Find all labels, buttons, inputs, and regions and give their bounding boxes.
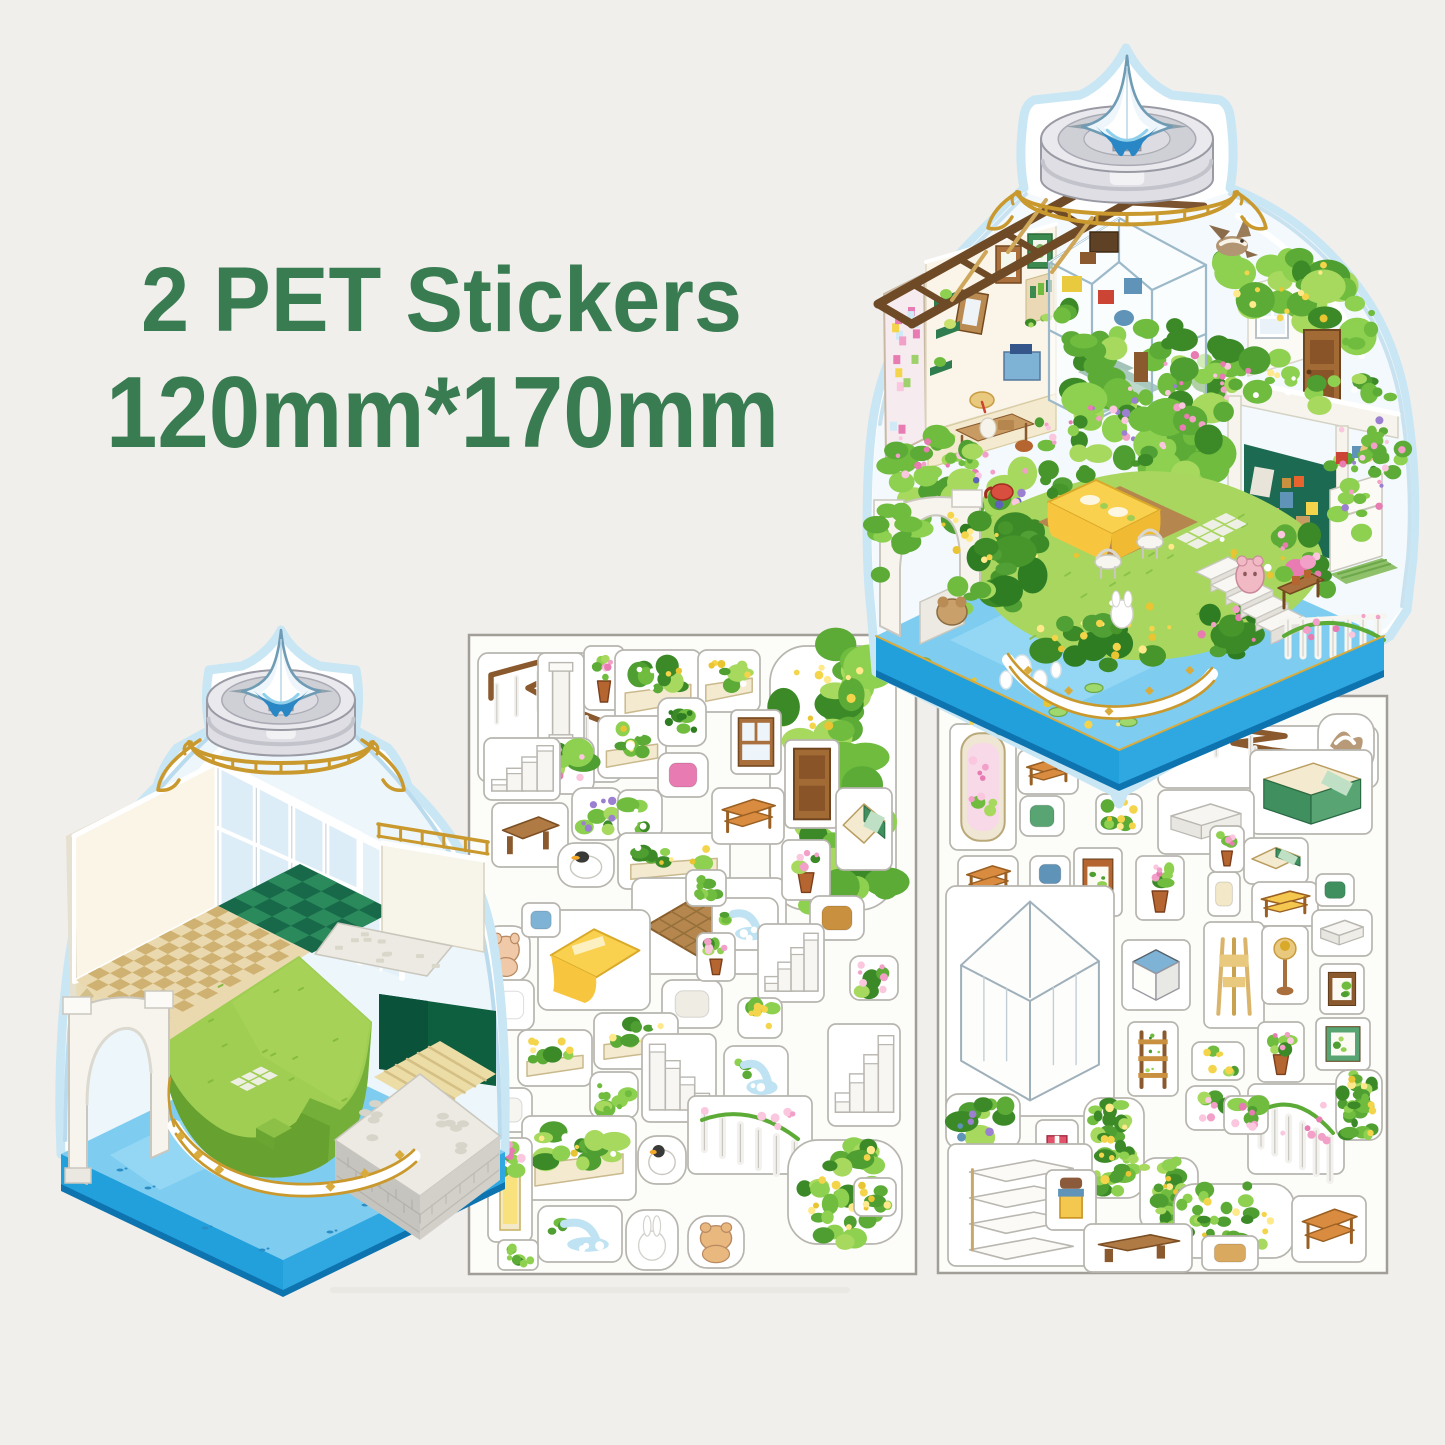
svg-text:120mm*170mm: 120mm*170mm: [106, 357, 779, 469]
svg-text:2 PET Stickers: 2 PET Stickers: [141, 249, 742, 351]
